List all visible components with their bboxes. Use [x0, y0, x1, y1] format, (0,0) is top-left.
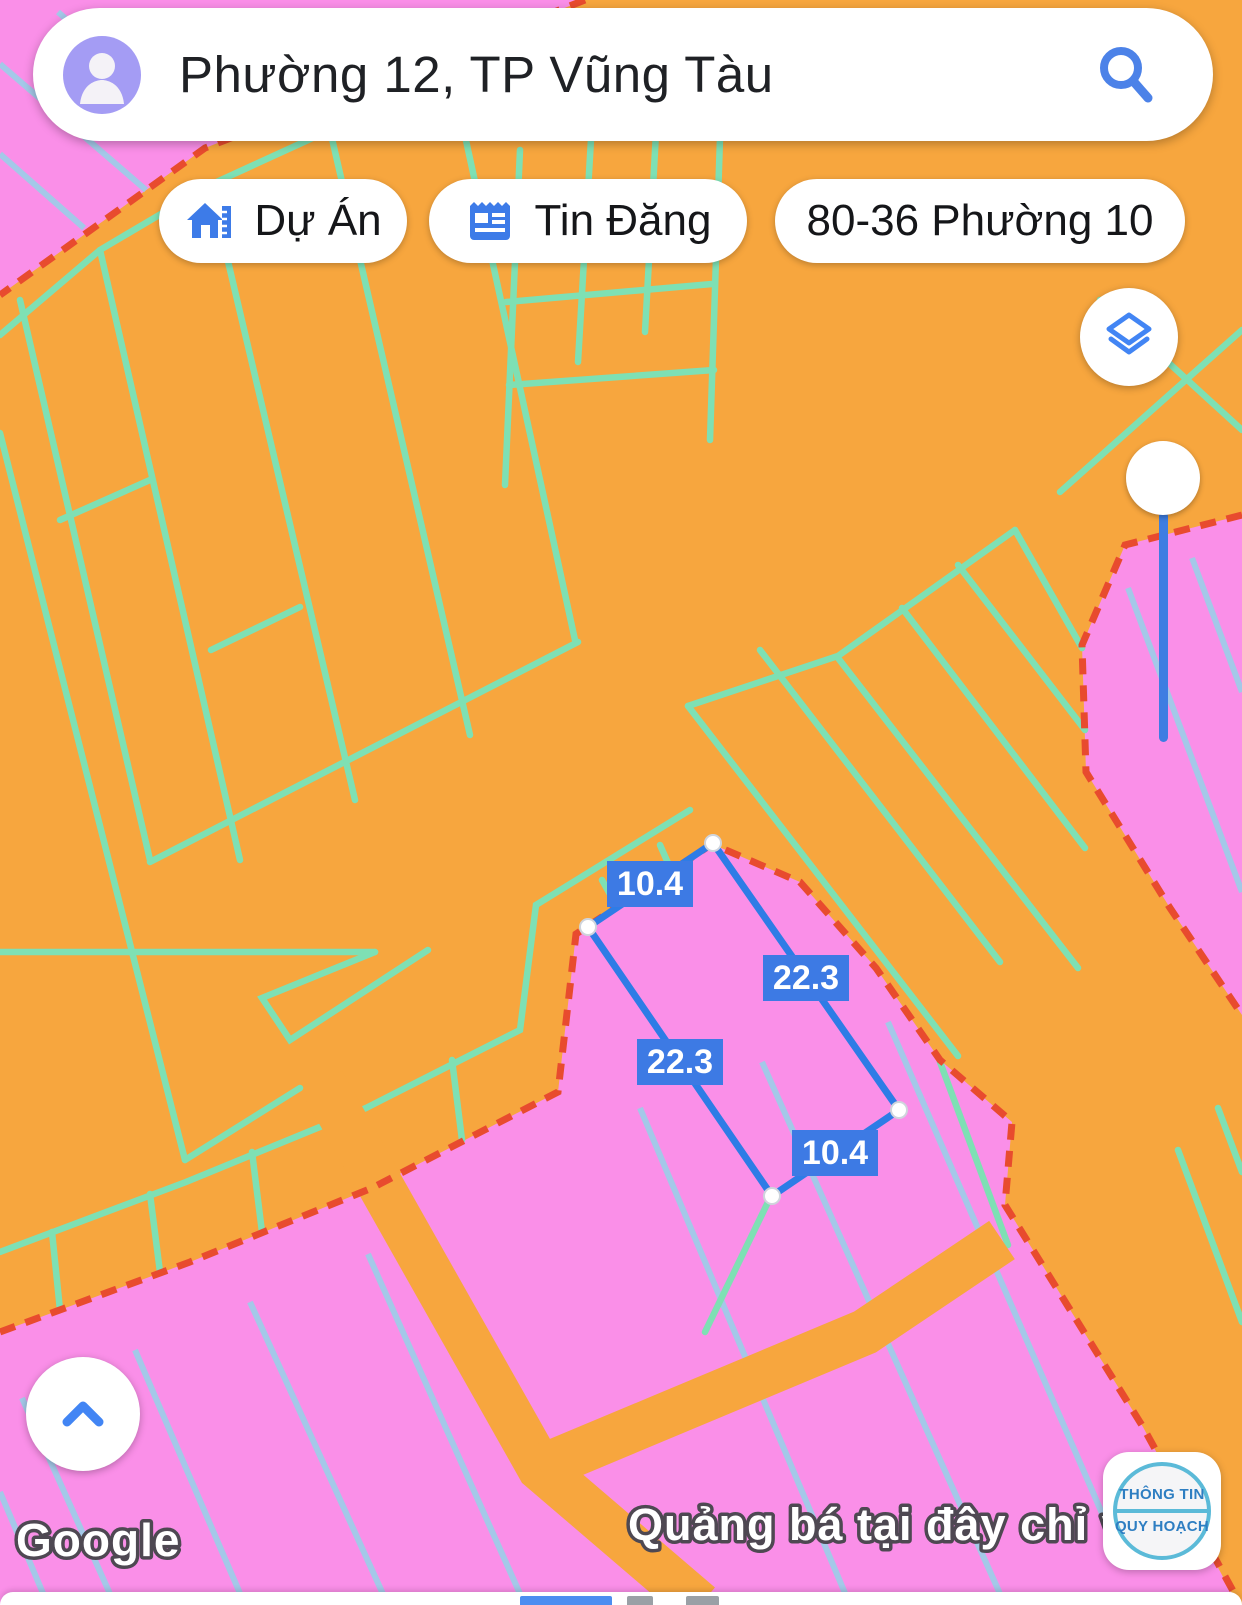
chip-tin-dang-label: Tin Đăng [535, 196, 712, 246]
person-icon [63, 36, 141, 114]
zoom-slider-track[interactable] [1159, 512, 1168, 742]
measurement-label-right: 22.3 [763, 955, 849, 1001]
chip-du-an[interactable]: Dự Án [159, 179, 407, 263]
search-input[interactable]: Phường 12, TP Vũng Tàu [179, 45, 1093, 104]
ad-watermark: Quảng bá tại đây chỉ vớ [628, 1499, 1161, 1550]
collapse-button[interactable] [26, 1357, 140, 1471]
sheet-thumbnail-gray [686, 1596, 719, 1605]
bottom-sheet[interactable] [0, 1592, 1242, 1605]
planning-badge-logo: THÔNG TIN QUY HOẠCH [1113, 1462, 1211, 1560]
zoom-slider-handle[interactable] [1126, 441, 1200, 515]
google-watermark: Google [16, 1514, 180, 1566]
measurement-label-bottom: 10.4 [792, 1130, 878, 1176]
newspaper-icon [465, 196, 515, 246]
chevron-up-icon [51, 1382, 115, 1446]
layers-icon [1101, 309, 1157, 365]
chip-address[interactable]: 80-36 Phường 10 [775, 179, 1185, 263]
app-screen: 10.4 22.3 22.3 10.4 Google Quảng bá tại … [0, 0, 1242, 1605]
measure-value-left: 22.3 [647, 1043, 713, 1081]
planning-info-badge[interactable]: THÔNG TIN QUY HOẠCH [1103, 1452, 1221, 1570]
filter-chip-row: Dự Án Tin Đăng 80-36 Phường 10 [0, 179, 1242, 263]
chip-du-an-label: Dự Án [254, 196, 381, 246]
house-icon [184, 196, 234, 246]
measure-value-top: 10.4 [617, 865, 683, 903]
measurement-label-left: 22.3 [637, 1039, 723, 1085]
user-avatar[interactable] [63, 36, 141, 114]
measure-value-bottom: 10.4 [802, 1134, 868, 1172]
badge-line1: THÔNG TIN [1119, 1485, 1204, 1505]
search-bar[interactable]: Phường 12, TP Vũng Tàu [33, 8, 1213, 141]
layers-button[interactable] [1080, 288, 1178, 386]
sheet-thumbnail-gray [627, 1596, 653, 1605]
chip-tin-dang[interactable]: Tin Đăng [429, 179, 747, 263]
measure-value-right: 22.3 [773, 959, 839, 997]
search-icon[interactable] [1093, 42, 1159, 108]
sheet-thumbnail-blue [520, 1596, 612, 1605]
chip-address-label: 80-36 Phường 10 [807, 196, 1154, 246]
badge-line2: QUY HOẠCH [1115, 1517, 1209, 1537]
measurement-label-top: 10.4 [607, 861, 693, 907]
